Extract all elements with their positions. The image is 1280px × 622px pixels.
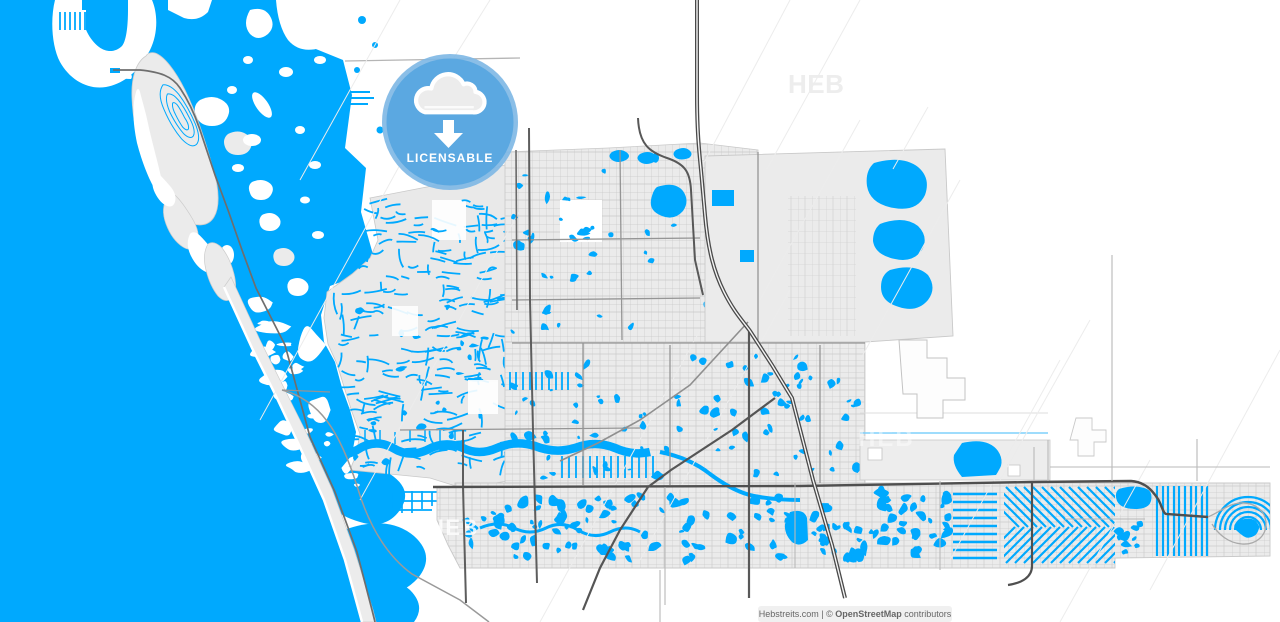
svg-text:HEB: HEB — [858, 425, 915, 452]
svg-text:HEB: HEB — [428, 515, 479, 540]
svg-text:Hebstreits.com | © OpenStreetM: Hebstreits.com | © OpenStreetMap contrib… — [759, 609, 952, 619]
svg-text:HEB: HEB — [788, 69, 844, 99]
svg-text:LICENSABLE: LICENSABLE — [407, 151, 494, 165]
